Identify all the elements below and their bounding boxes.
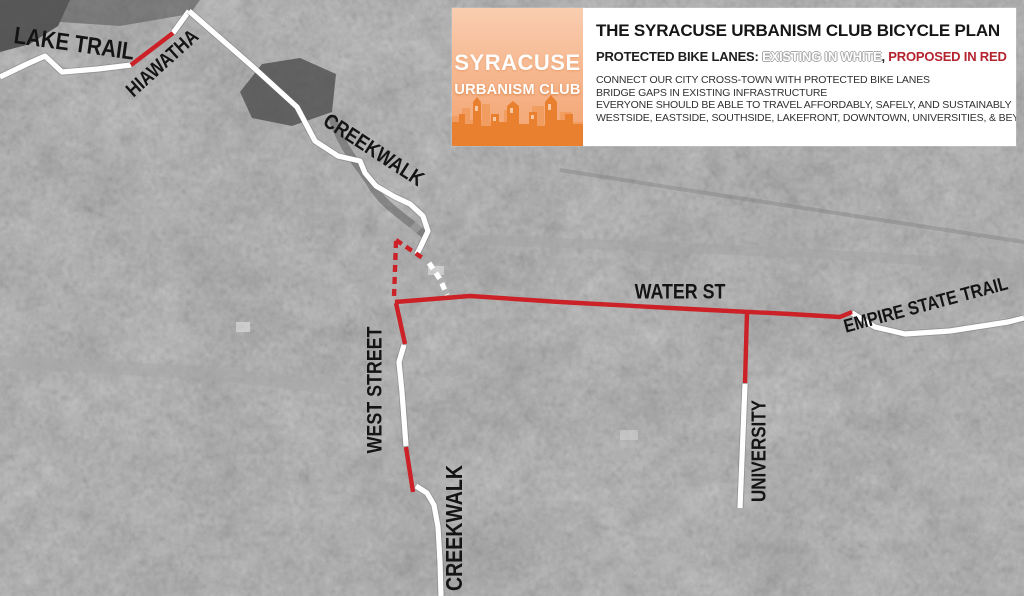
- bicycle-plan-poster: LAKE TRAILHIAWATHACREEKWALKWATER STEMPIR…: [0, 0, 1024, 596]
- label-university: UNIVERSITY: [747, 399, 770, 502]
- goal-line-3: EVERYONE SHOULD BE ABLE TO TRAVEL AFFORD…: [596, 99, 1006, 112]
- label-water-st: WATER ST: [635, 280, 726, 304]
- legend-line: PROTECTED BIKE LANES: EXISTING IN WHITE,…: [596, 49, 1006, 64]
- plan-goals: CONNECT OUR CITY CROSS-TOWN WITH PROTECT…: [596, 74, 1006, 124]
- plan-header-text: THE SYRACUSE URBANISM CLUB BICYCLE PLAN …: [583, 8, 1016, 146]
- plan-title: THE SYRACUSE URBANISM CLUB BICYCLE PLAN: [596, 21, 1006, 41]
- logo-cityscape-icon: [452, 90, 583, 146]
- goal-line-2: BRIDGE GAPS IN EXISTING INFRASTRUCTURE: [596, 87, 1006, 100]
- goal-line-1: CONNECT OUR CITY CROSS-TOWN WITH PROTECT…: [596, 74, 1006, 87]
- label-west-street: WEST STREET: [363, 326, 387, 453]
- logo-wordmark-urbanism-club: URBANISM CLUB: [452, 82, 583, 98]
- university-proposed: [745, 312, 747, 383]
- lot-light-3: [620, 430, 638, 440]
- plan-header: SYRACUSE URBANISM CLUB THE SYRACUSE URBA…: [452, 8, 1016, 146]
- label-creekwalk-south: CREEKWALK: [442, 465, 468, 591]
- legend-proposed-in-red: PROPOSED IN RED: [888, 49, 1006, 64]
- lot-light-2: [236, 322, 250, 332]
- legend-prefix: PROTECTED BIKE LANES:: [596, 49, 762, 64]
- legend-existing-in-white: EXISTING IN WHITE: [762, 49, 881, 64]
- syracuse-urbanism-club-logo: SYRACUSE URBANISM CLUB: [452, 8, 583, 146]
- goal-line-4: WESTSIDE, EASTSIDE, SOUTHSIDE, LAKEFRONT…: [596, 112, 1006, 125]
- logo-wordmark-syracuse: SYRACUSE: [452, 50, 583, 76]
